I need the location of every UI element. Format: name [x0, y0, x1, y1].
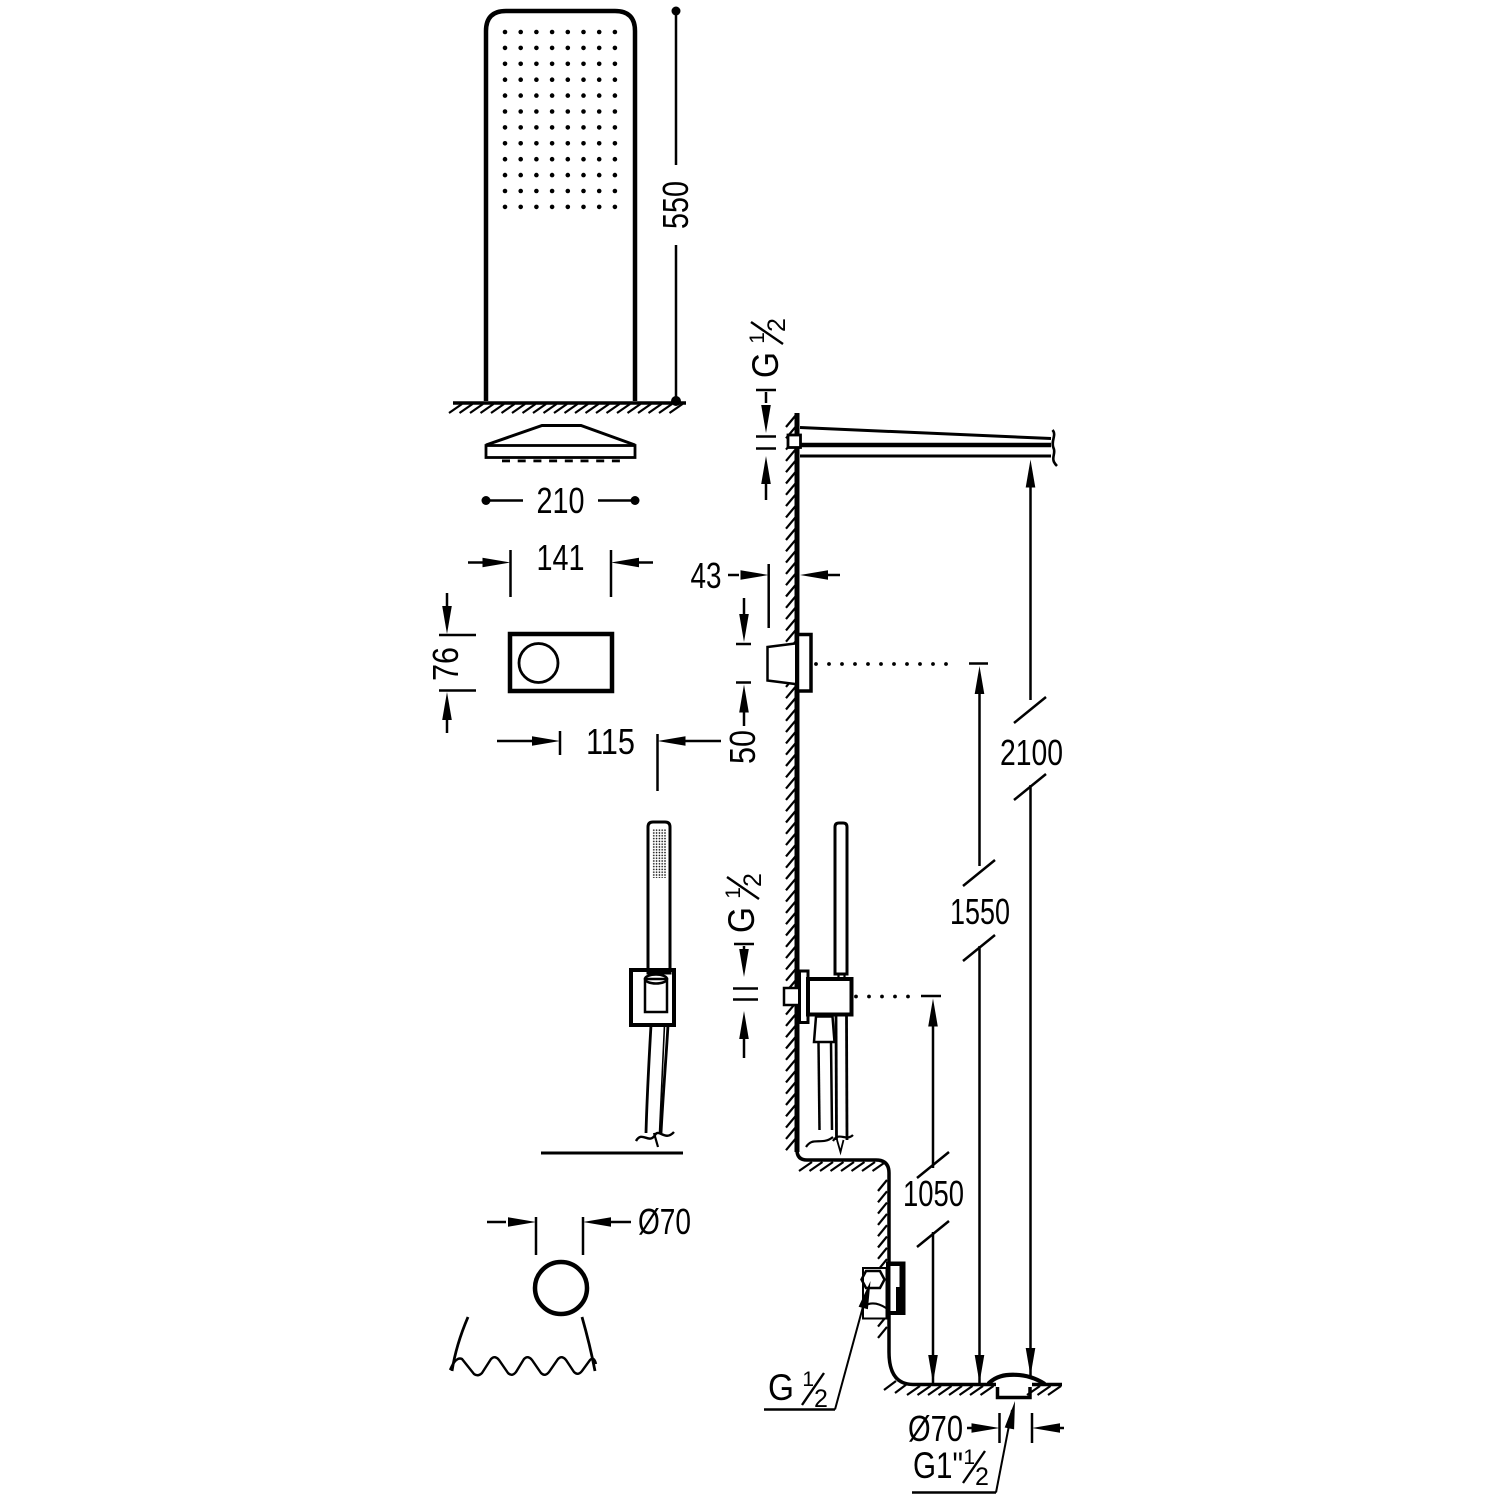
svg-text:Ø70: Ø70: [638, 1201, 691, 1242]
svg-text:2: 2: [763, 318, 791, 332]
svg-text:1: 1: [802, 1368, 814, 1391]
svg-text:Ø70: Ø70: [908, 1408, 963, 1449]
svg-text:43: 43: [691, 555, 722, 596]
svg-text:G: G: [745, 352, 786, 378]
svg-text:1050: 1050: [903, 1173, 964, 1214]
svg-text:76: 76: [425, 647, 466, 681]
svg-text:1: 1: [722, 887, 745, 899]
svg-text:210: 210: [537, 480, 585, 521]
svg-text:1550: 1550: [950, 891, 1010, 932]
svg-text:50: 50: [722, 730, 763, 764]
svg-text:G1": G1": [913, 1445, 963, 1486]
svg-text:2: 2: [975, 1463, 989, 1491]
svg-text:115: 115: [586, 721, 635, 762]
svg-text:2: 2: [739, 873, 767, 887]
svg-text:2100: 2100: [1000, 732, 1063, 773]
svg-text:1: 1: [963, 1446, 975, 1469]
svg-text:G: G: [768, 1367, 794, 1408]
svg-text:141: 141: [537, 537, 585, 578]
svg-text:1: 1: [746, 332, 769, 344]
svg-text:550: 550: [655, 181, 696, 229]
svg-text:G: G: [721, 907, 762, 933]
